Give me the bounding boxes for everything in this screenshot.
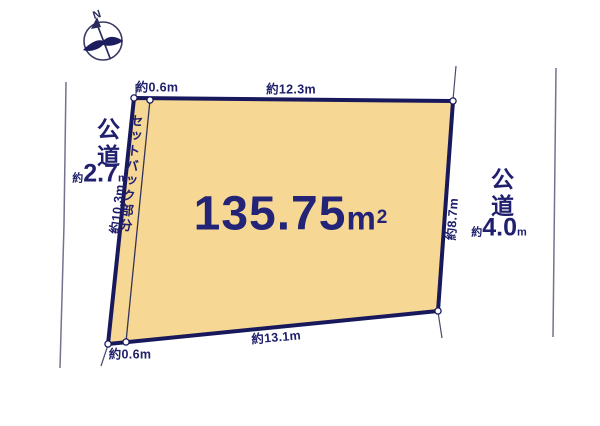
- dimension-top-edge: 約12.3m: [266, 79, 316, 98]
- north-compass-icon: [83, 17, 123, 60]
- parcel-area-label: 135.75m2: [194, 187, 389, 242]
- left-road-width-unit: m: [118, 173, 128, 185]
- right-road-width-prefix: 約: [471, 227, 482, 239]
- dimension-bottom-setback-width: 約0.6m: [109, 344, 152, 363]
- land-plot-diagram: N 約0.6m 約12.3m 約10.3m 約8.7m 約13.1m 約0.6m…: [0, 0, 600, 426]
- right-road-width-value: 4.0: [482, 214, 517, 242]
- corner-dot-setback-top: [147, 97, 153, 103]
- dimension-right-edge: 約8.7m: [440, 197, 462, 241]
- right-road-width: 約4.0m: [471, 214, 527, 243]
- bottom-left-extension-line: [101, 345, 108, 366]
- bottom-right-extension-line: [438, 312, 442, 338]
- corner-dot-bottom-right: [435, 308, 441, 314]
- left-road-width-value: 2.7: [83, 160, 118, 188]
- corner-dot-top-left: [131, 95, 137, 101]
- dimension-top-setback-width: 約0.6m: [136, 77, 179, 96]
- parcel-area-value: 135.75: [194, 188, 347, 241]
- parcel-area-unit: m: [346, 200, 376, 237]
- top-right-extension-line: [453, 66, 456, 100]
- left-road-far-edge-line: [60, 82, 66, 368]
- corner-dot-top-right: [450, 98, 456, 104]
- left-road-width: 約2.7m: [72, 160, 128, 189]
- right-road-far-edge-line: [553, 68, 556, 337]
- right-road-width-unit: m: [517, 227, 527, 239]
- left-road-width-prefix: 約: [72, 173, 83, 185]
- parcel-area-exponent: 2: [377, 207, 389, 228]
